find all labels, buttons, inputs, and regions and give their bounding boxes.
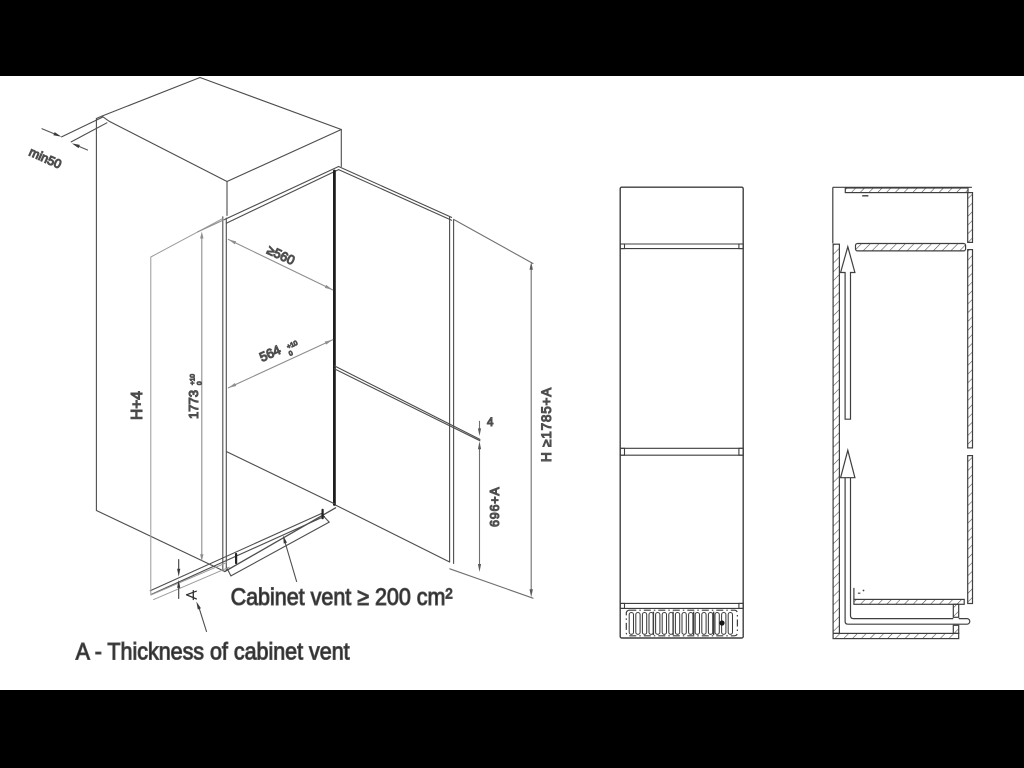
svg-text:1773: 1773 [186,390,201,419]
svg-text:0: 0 [197,381,204,385]
svg-text:H+4: H+4 [129,391,146,420]
svg-text:696+A: 696+A [488,487,502,528]
svg-text:4: 4 [487,417,494,429]
svg-text:+10: +10 [190,374,197,385]
svg-text:H ≥1785+A: H ≥1785+A [539,387,554,462]
svg-text:Cabinet vent ≥ 200 cm²: Cabinet vent ≥ 200 cm² [231,584,453,611]
svg-text:A - Thickness of cabinet vent: A - Thickness of cabinet vent [76,639,350,666]
